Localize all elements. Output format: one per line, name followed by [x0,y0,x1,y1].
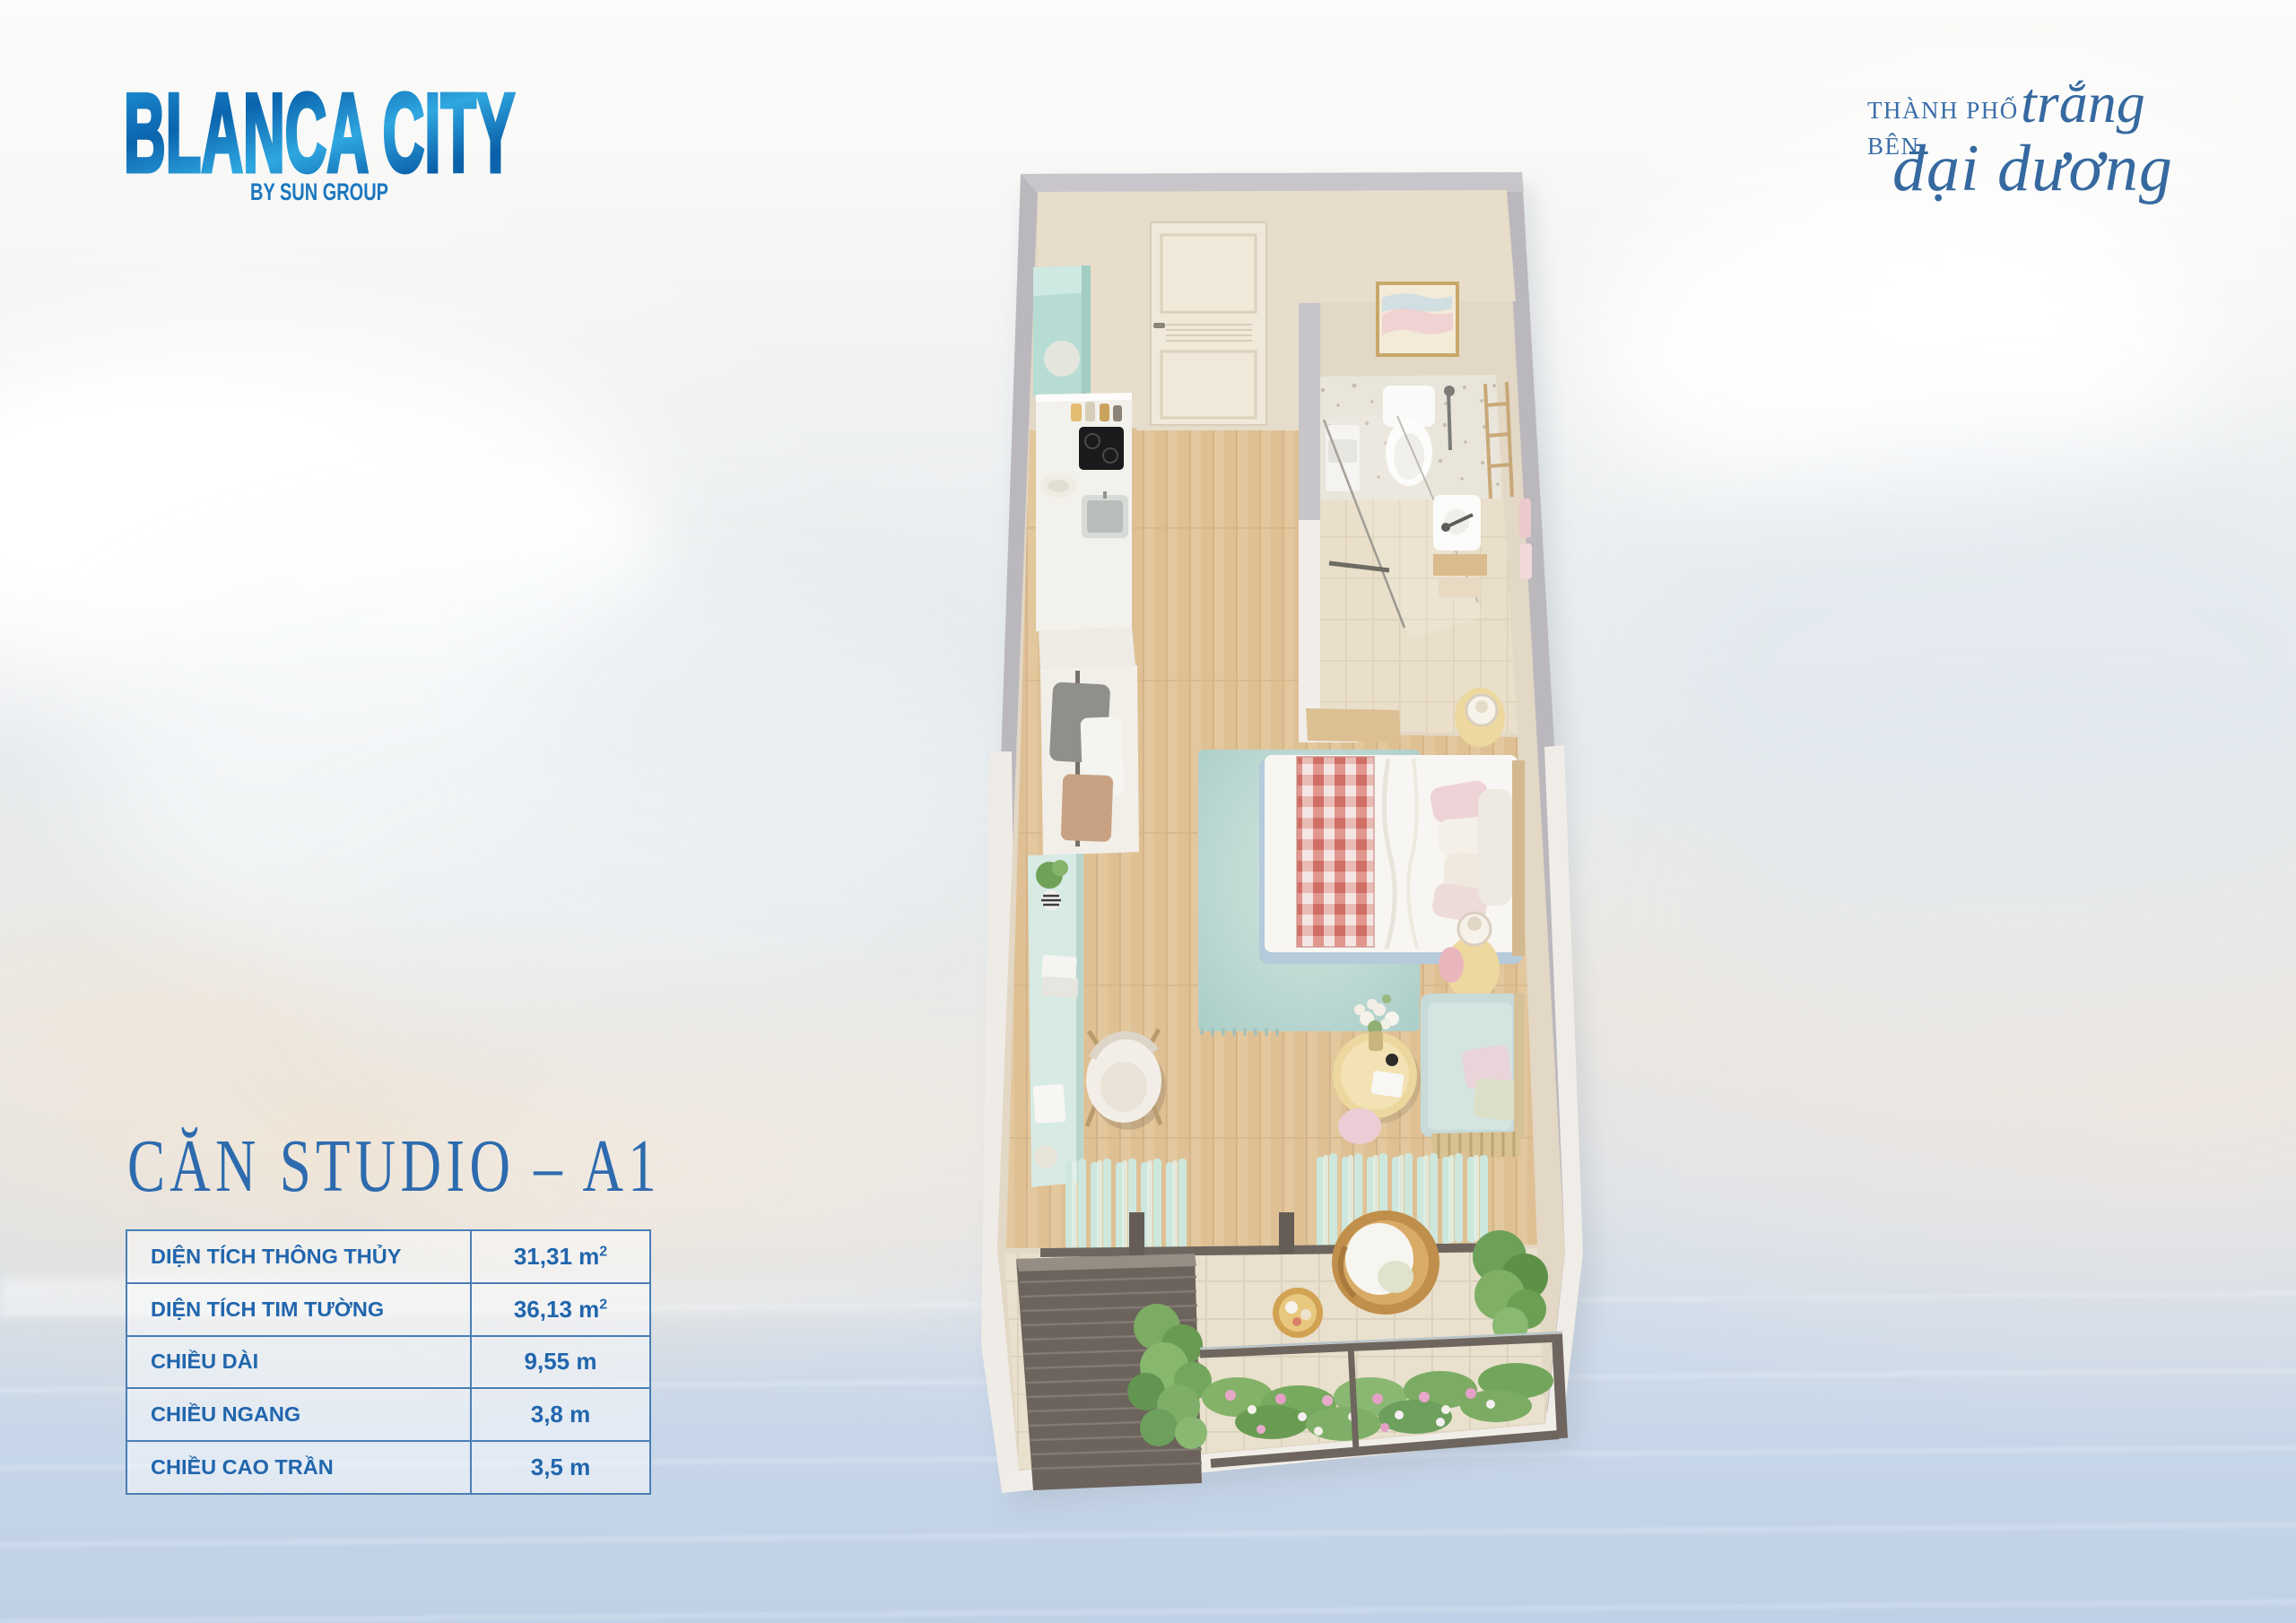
svg-text:BLANCA CITY: BLANCA CITY [124,82,515,176]
